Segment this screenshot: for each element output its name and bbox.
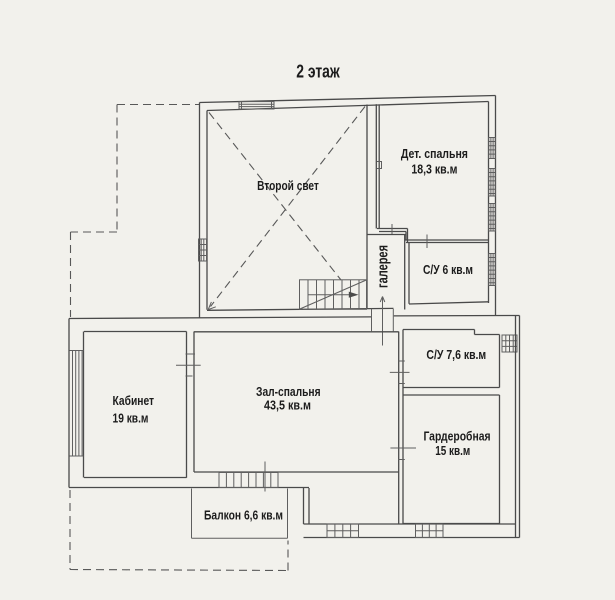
svg-text:галерея: галерея	[376, 245, 392, 288]
svg-text:Кабинет: Кабинет	[113, 394, 155, 408]
svg-text:43,5 кв.м: 43,5 кв.м	[264, 399, 311, 413]
svg-text:Второй свет: Второй свет	[257, 179, 319, 193]
svg-text:2 этаж: 2 этаж	[296, 61, 340, 81]
svg-text:С/У 7,6 кв.м: С/У 7,6 кв.м	[426, 348, 486, 362]
svg-text:15 кв.м: 15 кв.м	[435, 444, 470, 458]
svg-text:19 кв.м: 19 кв.м	[113, 412, 149, 426]
svg-text:Балкон 6,6 кв.м: Балкон 6,6 кв.м	[204, 508, 283, 522]
svg-text:Дет. спальня: Дет. спальня	[401, 147, 468, 161]
svg-text:С/У 6 кв.м: С/У 6 кв.м	[423, 263, 473, 277]
svg-text:Зал-спальня: Зал-спальня	[256, 385, 321, 399]
svg-text:Гардеробная: Гардеробная	[423, 430, 490, 444]
svg-text:18,3 кв.м: 18,3 кв.м	[411, 163, 457, 177]
